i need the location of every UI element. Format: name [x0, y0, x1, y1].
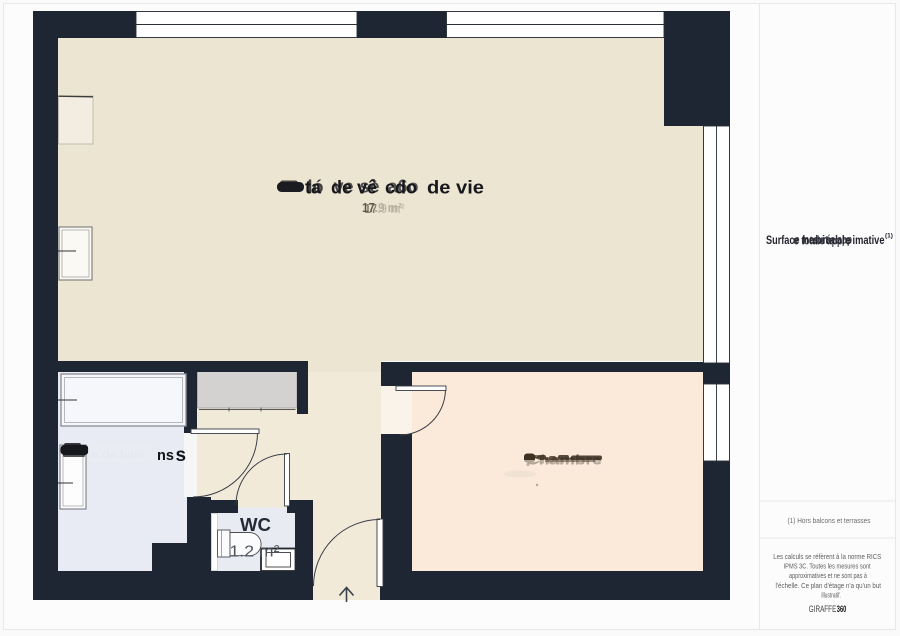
svg-text:ló: ló — [308, 177, 324, 197]
svg-text:(1) Hors balcons et terrasses: (1) Hors balcons et terrasses — [788, 516, 871, 525]
svg-text:a6o: a6o — [388, 177, 419, 197]
svg-text:Les calculs se réfèrent à la n: Les calculs se réfèrent à la norme RICS — [773, 552, 881, 561]
svg-text:ve: ve — [334, 177, 354, 197]
svg-text:sè: sè — [360, 177, 380, 197]
svg-text:imative: imative — [853, 235, 885, 247]
svg-text:Surfac: Surfac — [766, 235, 795, 247]
svg-text:ns: ns — [157, 448, 174, 464]
svg-text:de vie: de vie — [427, 177, 484, 198]
svg-text:approximatives et ne sont pas: approximatives et ne sont pas à — [789, 571, 868, 580]
svg-text:illustratif.: illustratif. — [821, 590, 841, 599]
svg-text:s: s — [176, 445, 187, 466]
svg-text:GIRAFFE: GIRAFFE — [809, 604, 837, 615]
svg-text:WC: WC — [240, 515, 271, 535]
svg-text:e totale appro: e totale appro — [794, 236, 851, 248]
svg-text:(1): (1) — [885, 233, 893, 240]
svg-text:360: 360 — [837, 604, 847, 615]
svg-text:1.2 m²: 1.2 m² — [230, 544, 281, 561]
svg-text:IPMS 3C. Toutes les mesures so: IPMS 3C. Toutes les mesures sont — [784, 562, 871, 571]
svg-text:l'échelle. Ce plan d'étage n'a: l'échelle. Ce plan d'étage n'a qu'un but — [776, 581, 882, 590]
